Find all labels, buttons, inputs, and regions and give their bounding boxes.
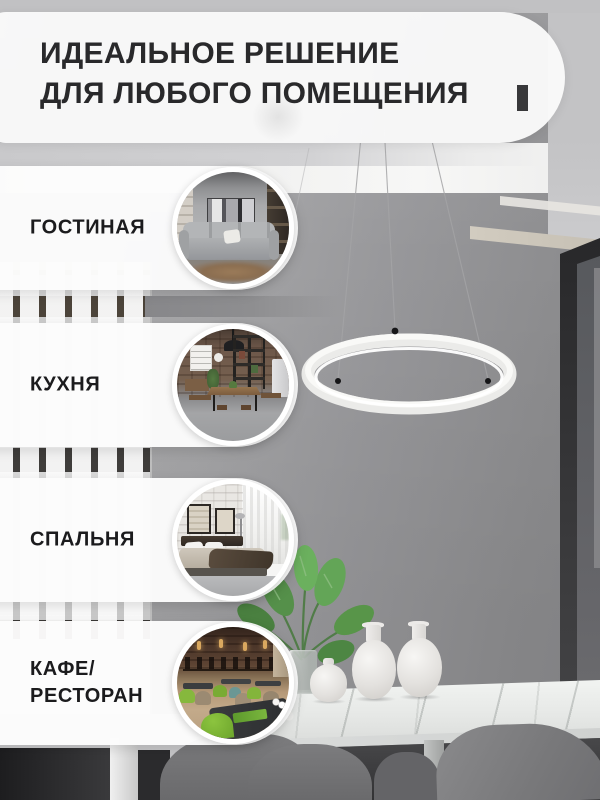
sofa-arm (269, 230, 279, 260)
bed-base (183, 568, 267, 576)
badge-label: СПАЛЬНЯ (30, 527, 135, 554)
badge-label: КАФЕ/ РЕСТОРАН (30, 656, 143, 710)
badge-label: КУХНЯ (30, 372, 100, 399)
poster (190, 345, 212, 371)
console (185, 379, 209, 391)
hanging-light (219, 639, 223, 648)
banner-ghost-shadow (252, 92, 304, 142)
lamp-ring-led-glow (316, 349, 502, 406)
hanging-light (263, 640, 267, 649)
bottle-row (185, 657, 281, 669)
dining-table (207, 387, 261, 395)
table-leg (213, 395, 215, 411)
white-vase (397, 638, 442, 697)
green-chair (179, 689, 195, 703)
dark-wall-object (517, 85, 528, 111)
floor-lamp-head (235, 513, 245, 519)
stool (217, 405, 227, 410)
fridge (272, 359, 289, 397)
shelf-item (239, 351, 245, 359)
brown-rug (183, 260, 283, 284)
picture-frame (187, 504, 211, 534)
small-white-vase (310, 664, 347, 702)
lamp-mount-dot (485, 378, 491, 384)
bench (261, 393, 281, 398)
cafe-table (255, 681, 281, 686)
bedroom-floor (177, 576, 289, 596)
white-flowers (271, 697, 287, 711)
white-pillow (223, 229, 241, 244)
green-chair (247, 687, 261, 699)
table-plant (229, 381, 237, 388)
wall-plate (214, 353, 223, 362)
tall-plant (207, 369, 219, 389)
stool (241, 405, 251, 410)
badge-photo-cafe-restaurant (172, 622, 294, 744)
promo-image: ИДЕАЛЬНОЕ РЕШЕНИЕ ДЛЯ ЛЮБОГО ПОМЕЩЕНИЯ Г… (0, 0, 600, 800)
badge-photo-kitchen (172, 324, 294, 446)
lamp-mount-dot (335, 378, 341, 384)
pillar (273, 627, 289, 677)
badge-label: ГОСТИНАЯ (30, 215, 145, 242)
table-leg (255, 395, 257, 411)
badge-kitchen: КУХНЯ (0, 323, 298, 447)
grey-chair (374, 752, 440, 800)
greenery-glimpse (281, 514, 289, 540)
badge-cafe-restaurant: КАФЕ/ РЕСТОРАН (0, 621, 298, 745)
badge-living-room: ГОСТИНАЯ (0, 166, 298, 290)
shelf-line (183, 669, 283, 671)
bench (189, 395, 211, 400)
white-table-leg (110, 738, 138, 800)
sofa-arm (179, 230, 189, 260)
lamp-mount-dot (392, 328, 399, 335)
green-chair (213, 685, 227, 697)
badge-photo-bedroom (172, 479, 294, 601)
shelf-item (251, 365, 258, 373)
badge-bedroom: СПАЛЬНЯ (0, 478, 298, 602)
dark-sideboard (0, 748, 118, 800)
cafe-table (221, 679, 251, 684)
picture-frame (215, 508, 235, 534)
hanging-light (197, 641, 201, 650)
badge-photo-living-room (172, 167, 294, 289)
hanging-light (243, 642, 247, 651)
metal-shelving (233, 335, 265, 389)
white-vase (352, 640, 396, 699)
taupe-chair (195, 691, 211, 705)
